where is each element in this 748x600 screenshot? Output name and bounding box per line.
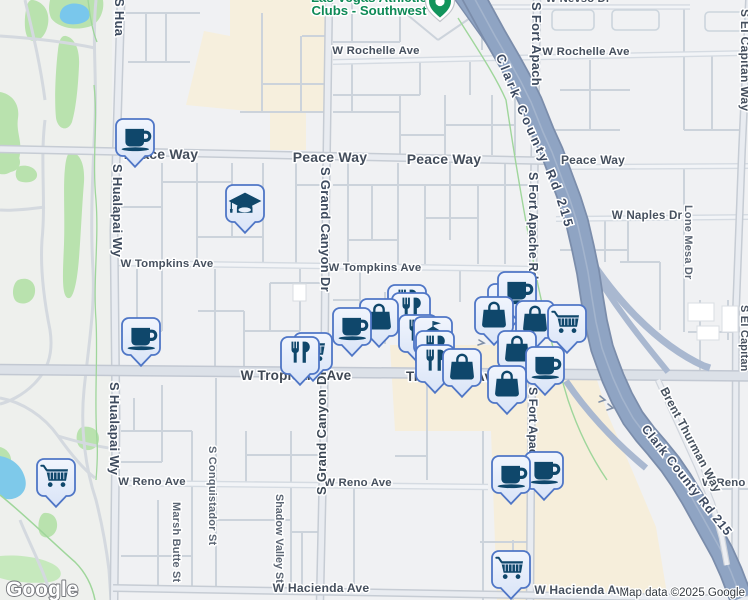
svg-text:W Nevso Dr: W Nevso Dr bbox=[546, 0, 611, 5]
svg-text:S Grand Canyon Dr: S Grand Canyon Dr bbox=[314, 370, 329, 495]
svg-text:S Hualapai Wy: S Hualapai Wy bbox=[107, 382, 122, 476]
svg-text:Shadow Valley St: Shadow Valley St bbox=[273, 494, 285, 583]
svg-text:Lone Mesa Dr: Lone Mesa Dr bbox=[682, 205, 694, 280]
svg-text:W Hacienda Ave: W Hacienda Ave bbox=[273, 581, 370, 595]
svg-text:S El Capitan Way: S El Capitan Way bbox=[738, 9, 748, 111]
svg-text:W Naples Dr: W Naples Dr bbox=[612, 209, 683, 222]
svg-text:W Tompkins Ave: W Tompkins Ave bbox=[121, 258, 214, 270]
svg-text:W Hacienda Ave: W Hacienda Ave bbox=[534, 583, 629, 597]
svg-text:S El Capitan: S El Capitan bbox=[738, 305, 748, 372]
svg-text:S Hua: S Hua bbox=[112, 0, 127, 37]
svg-text:Clubs - Southwest: Clubs - Southwest bbox=[311, 3, 427, 18]
svg-text:Map data ©2025 Google: Map data ©2025 Google bbox=[620, 587, 745, 599]
svg-text:W Rochelle Ave: W Rochelle Ave bbox=[332, 45, 419, 57]
svg-text:S Grand Canyon Dr: S Grand Canyon Dr bbox=[318, 167, 333, 292]
svg-text:Google: Google bbox=[6, 578, 78, 600]
svg-text:S Hualapai Wy: S Hualapai Wy bbox=[110, 164, 125, 258]
svg-text:Peace Way: Peace Way bbox=[561, 153, 625, 167]
svg-text:W Rochelle Ave: W Rochelle Ave bbox=[542, 46, 629, 58]
svg-text:Peace Way: Peace Way bbox=[293, 149, 367, 165]
svg-text:S Fort Apache Rd: S Fort Apache Rd bbox=[526, 172, 540, 280]
svg-text:W Tompkins Ave: W Tompkins Ave bbox=[329, 262, 422, 274]
svg-text:W Reno Ave: W Reno Ave bbox=[118, 476, 186, 488]
svg-text:S Conquistador St: S Conquistador St bbox=[206, 446, 218, 545]
svg-text:S Fort Apach: S Fort Apach bbox=[529, 2, 544, 86]
svg-text:W Reno Ave: W Reno Ave bbox=[324, 477, 392, 489]
svg-text:Marsh Butte St: Marsh Butte St bbox=[170, 502, 182, 583]
svg-text:Peace Way: Peace Way bbox=[407, 151, 481, 167]
